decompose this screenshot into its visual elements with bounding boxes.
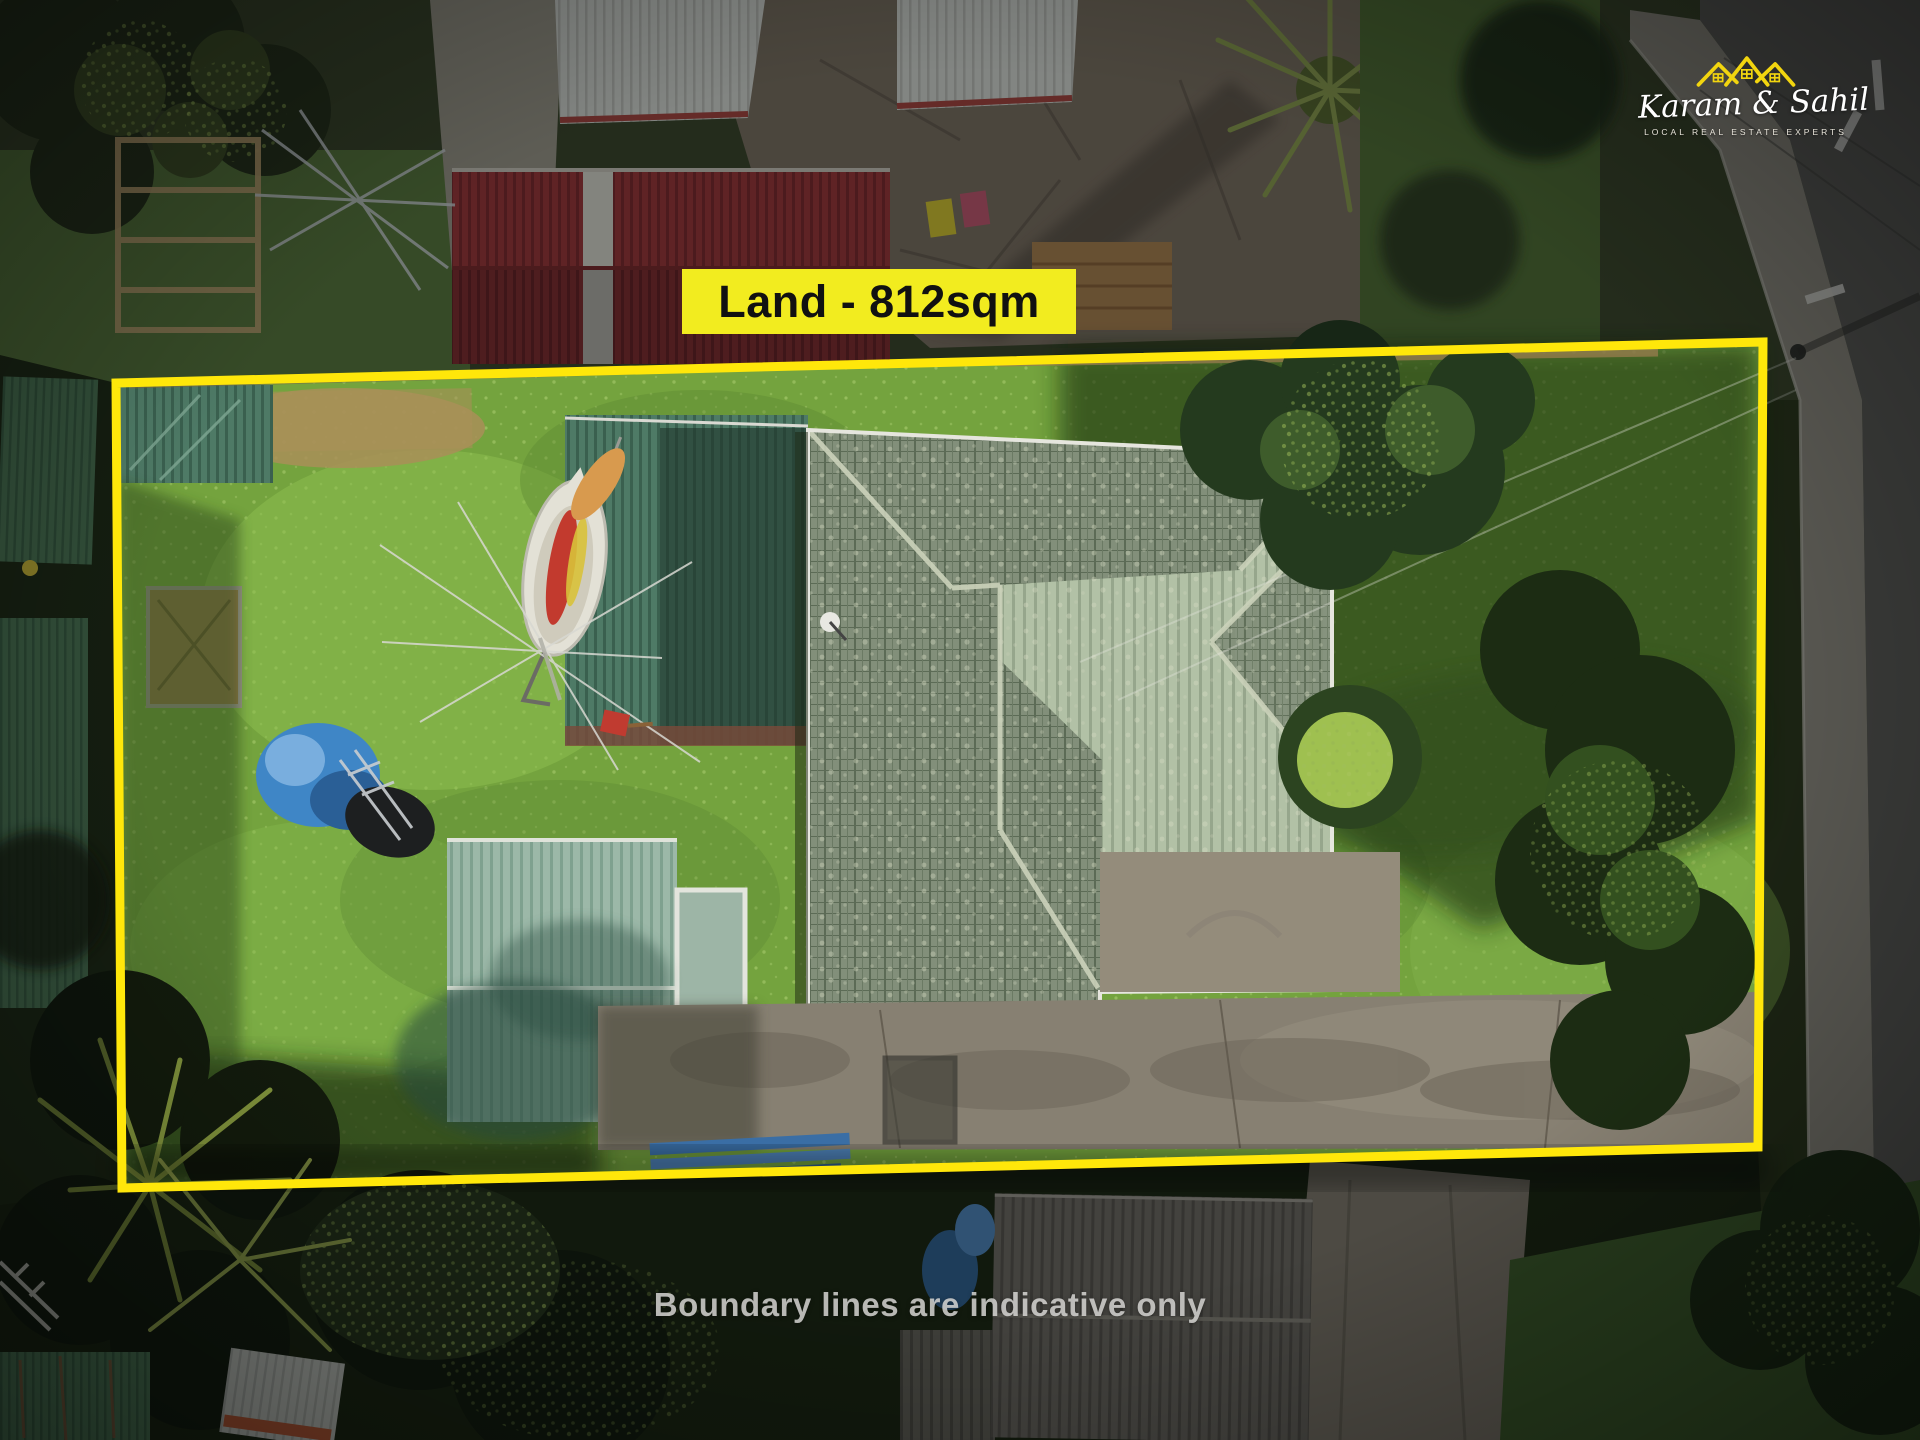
vignette [0, 0, 1920, 1440]
boundary-disclaimer: Boundary lines are indicative only [600, 1286, 1260, 1324]
land-area-label: Land - 812sqm [682, 269, 1076, 334]
triple-roof-icon [1696, 50, 1796, 88]
listing-photo: Land - 812sqm Karam & Sahil LOCAL REAL E… [0, 0, 1920, 1440]
agency-tagline: LOCAL REAL ESTATE EXPERTS [1638, 127, 1853, 137]
aerial-scene [0, 0, 1920, 1440]
agency-name: Karam & Sahil [1637, 84, 1853, 124]
agency-logo: Karam & Sahil LOCAL REAL ESTATE EXPERTS [1638, 50, 1853, 137]
